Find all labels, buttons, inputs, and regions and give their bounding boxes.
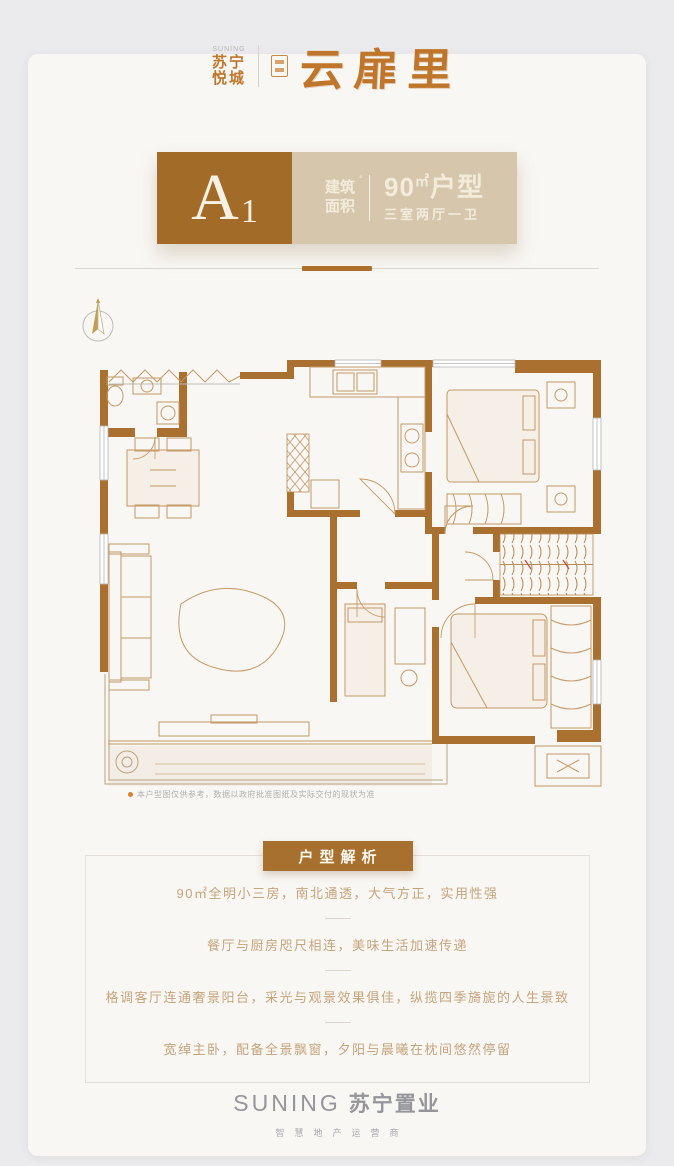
area-value: 90㎡户型: [384, 173, 484, 202]
item-divider: [325, 970, 351, 971]
area-label-mark: °: [359, 176, 362, 185]
analysis-item: 90㎡全明小三房，南北通透，大气方正，实用性强: [177, 883, 499, 902]
unit-letter: A: [191, 165, 239, 231]
compass-icon: [76, 296, 120, 351]
brand-logo: SUNING 苏宁 悦城 云扉里: [212, 34, 462, 98]
footer-logo-cn: 苏宁置业: [349, 1093, 441, 1116]
footer-logo-en: SUNING: [233, 1090, 340, 1116]
staircase: [500, 534, 593, 595]
seal-icon: [271, 55, 288, 77]
unit-header: A 1 ° 建筑 面积 90㎡户型 三室两厅一卫: [157, 152, 517, 244]
footer-logo: SUNING苏宁置业: [28, 1088, 646, 1118]
info-divider: [369, 175, 370, 221]
unit-code-box: A 1: [157, 152, 292, 244]
floor-plan: [95, 352, 605, 797]
brand-small-top: SUNING: [212, 46, 245, 53]
analysis-items: 90㎡全明小三房，南北通透，大气方正，实用性强 餐厅与厨房咫尺相连，美味生活加速…: [86, 856, 589, 1058]
unit-info-box: ° 建筑 面积 90㎡户型 三室两厅一卫: [292, 152, 517, 244]
brand-logo-main: 云扉里: [298, 34, 463, 98]
plan-note: 本户型图仅供参考，数据以政府批准图纸及实际交付的现状为准: [128, 789, 375, 800]
analysis-item: 格调客厅连通奢景阳台，采光与观景效果俱佳，纵揽四季旖旎的人生景致: [105, 987, 569, 1006]
note-bullet-icon: [128, 792, 133, 797]
poster-card: A 1 ° 建筑 面积 90㎡户型 三室两厅一卫: [28, 54, 646, 1156]
item-divider: [325, 918, 351, 919]
analysis-item: 宽绰主卧，配备全景飘窗，夕阳与晨曦在枕间悠然停留: [163, 1039, 511, 1058]
analysis-section: 户型解析 90㎡全明小三房，南北通透，大气方正，实用性强 餐厅与厨房咫尺相连，美…: [85, 855, 590, 1083]
footer-tagline: 智慧地产运营商: [28, 1126, 646, 1139]
brand-divider: [258, 45, 259, 87]
brand-logo-small: SUNING 苏宁 悦城: [212, 46, 246, 87]
item-divider: [325, 1022, 351, 1023]
area-label: ° 建筑 面积: [325, 179, 355, 217]
analysis-title-banner: 户型解析: [263, 841, 413, 871]
analysis-item: 餐厅与厨房咫尺相连，美味生活加速传递: [207, 935, 468, 954]
shaft-hatch: [287, 434, 309, 492]
unit-number: 1: [241, 193, 258, 231]
rooms-desc: 三室两厅一卫: [384, 204, 480, 223]
divider-rule-accent: [302, 266, 372, 271]
area-main: 90㎡户型 三室两厅一卫: [384, 173, 484, 224]
bay-window: [109, 370, 240, 384]
balcony: [105, 674, 447, 786]
